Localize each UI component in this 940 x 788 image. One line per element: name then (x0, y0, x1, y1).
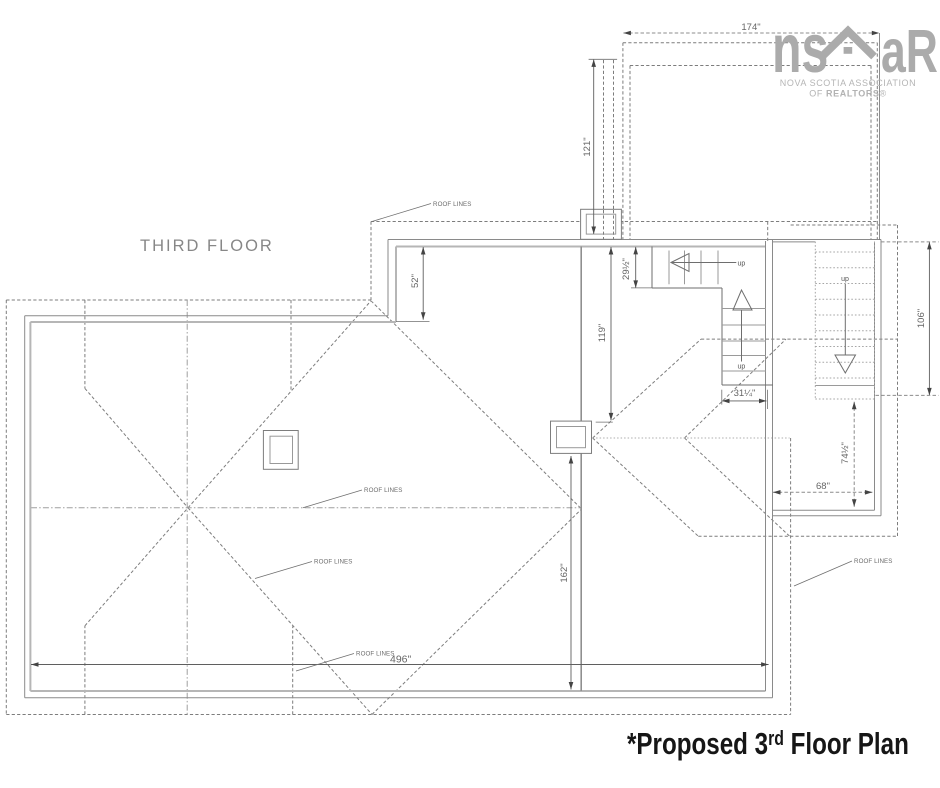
svg-text:121": 121" (582, 137, 593, 156)
svg-text:29½": 29½" (621, 258, 632, 280)
svg-text:aR: aR (881, 18, 938, 85)
svg-text:*Proposed 3rd Floor Plan: *Proposed 3rd Floor Plan (627, 726, 909, 760)
svg-text:ns: ns (772, 9, 828, 87)
svg-text:31¼": 31¼" (734, 388, 756, 399)
svg-text:119": 119" (597, 324, 608, 343)
svg-text:162": 162" (559, 563, 570, 582)
svg-text:NOVA SCOTIA ASSOCIATION: NOVA SCOTIA ASSOCIATION (780, 78, 917, 88)
svg-text:ROOF LINES: ROOF LINES (356, 651, 394, 658)
svg-text:OF REALTORS®: OF REALTORS® (809, 89, 887, 99)
svg-text:ROOF LINES: ROOF LINES (854, 558, 892, 565)
svg-text:up: up (738, 261, 746, 268)
svg-text:up: up (841, 276, 849, 283)
svg-text:52": 52" (410, 274, 421, 288)
svg-text:106": 106" (916, 309, 927, 328)
svg-text:ROOF LINES: ROOF LINES (314, 559, 352, 566)
svg-text:THIRD FLOOR: THIRD FLOOR (140, 237, 274, 255)
svg-text:up: up (738, 364, 746, 371)
svg-text:68": 68" (816, 481, 830, 492)
svg-text:74½": 74½" (840, 442, 851, 464)
svg-text:174": 174" (741, 22, 760, 33)
svg-text:ROOF LINES: ROOF LINES (433, 201, 471, 208)
svg-text:ROOF LINES: ROOF LINES (364, 487, 402, 494)
